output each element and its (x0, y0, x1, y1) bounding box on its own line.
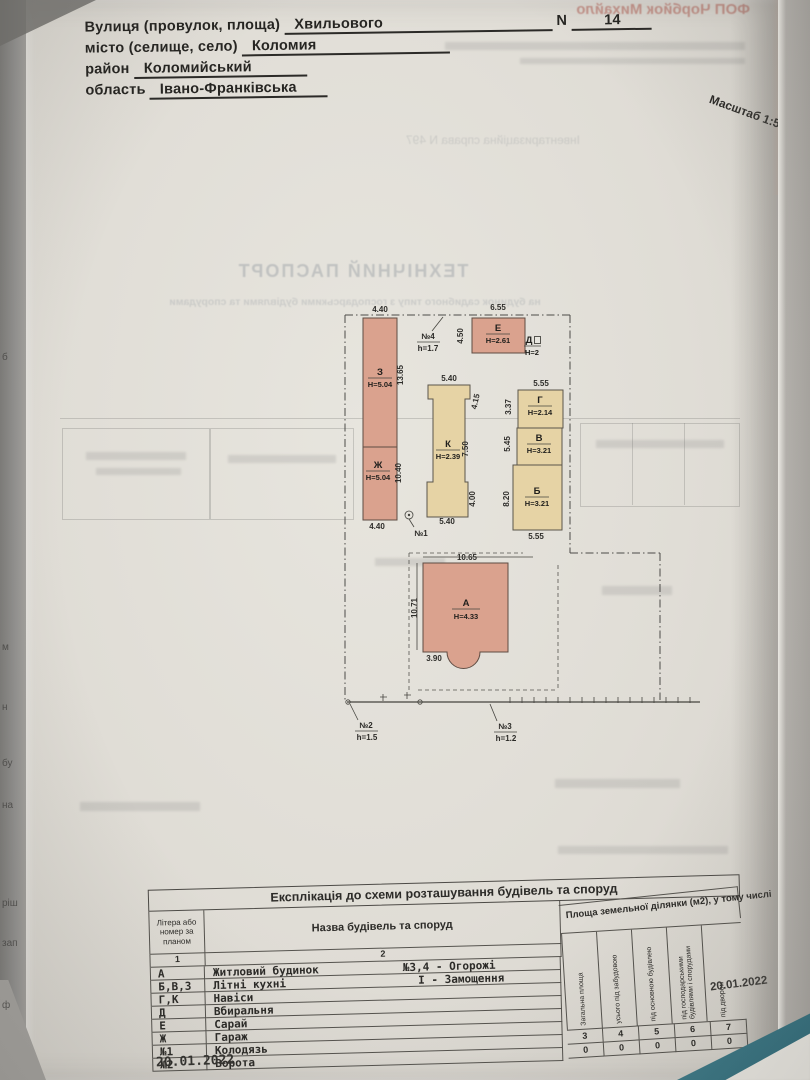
marker-leader (409, 519, 414, 527)
building-letter: В (536, 433, 543, 444)
dimension-label: 5.40 (441, 374, 457, 383)
marker-leader (432, 317, 443, 331)
building-height: Н=4.33 (454, 612, 478, 621)
row-name: Гараж (214, 1030, 247, 1044)
bleedthrough-bar (80, 802, 200, 811)
area-subcolumn-header: усього під забудовою (596, 930, 637, 1028)
bleedthrough-bar (86, 452, 186, 460)
bleedthrough-inventory-line: Інвентаризаційна справа N 497 (295, 133, 580, 147)
marker-label: №4 (421, 332, 435, 341)
dimension-label: 4.50 (456, 328, 465, 344)
marker-leader (350, 704, 358, 720)
row-name: Сарай (214, 1017, 247, 1031)
building-height: Н=3.21 (525, 499, 549, 508)
dimension-label: 6.55 (490, 303, 506, 312)
edge-text-fragment: на (2, 800, 24, 811)
dimension-label: 3.90 (426, 654, 442, 663)
building-height: Н=5.04 (366, 473, 391, 482)
marker-value: h=1.7 (418, 344, 439, 353)
region-row: область Івано-Франківська (85, 75, 605, 100)
dimension-label: 5.55 (533, 379, 549, 388)
edge-text-fragment: зап (2, 938, 24, 949)
well-symbol-dot (408, 514, 410, 516)
dimension-label: 4.40 (372, 305, 388, 314)
dimension-label: 10.65 (457, 553, 478, 562)
building-letter: Г (537, 395, 543, 406)
area-value: 0 (604, 1039, 641, 1056)
site-plan-drawing: З Н=5.04 Ж Н=5.04 Е Н=2.61 Д Н=2 Г Н=2.1… (335, 295, 710, 760)
date-stamp: 20.01.2022 (156, 1053, 235, 1071)
marker-label: №2 (359, 721, 373, 730)
area-value: 0 (568, 1042, 605, 1059)
edge-text-fragment: ріш (2, 898, 24, 909)
bleedthrough-box (210, 428, 354, 520)
fence-ticks (380, 692, 690, 703)
scanned-technical-passport-photo: { "document": { "header": { "street_labe… (0, 0, 810, 1080)
area-value: 0 (640, 1037, 677, 1054)
building-letter: Ж (373, 460, 383, 471)
building-letter: А (463, 598, 470, 609)
dimension-label: 10.40 (394, 462, 403, 483)
building-B (513, 465, 562, 530)
page-right-edge (778, 0, 810, 1080)
city-label: місто (селище, село) (85, 38, 238, 56)
dimension-label: 13.65 (396, 364, 405, 385)
area-subcolumn-header: Загальна площа (561, 932, 602, 1030)
column-header-letter: Літера або номер за планом (149, 910, 205, 954)
edge-text-fragment: н (2, 702, 24, 713)
dimension-label: 4.00 (468, 491, 477, 507)
district-label: район (85, 61, 130, 78)
bleedthrough-passport-title: ТЕХНІЧНИЙ ПАСПОРТ (235, 261, 470, 282)
building-height: Н=2.14 (528, 408, 553, 417)
marker-leader (490, 704, 497, 721)
dimension-label: 4.40 (369, 522, 385, 531)
dimension-label: 5.45 (503, 436, 512, 452)
page-fold-shadow (730, 0, 780, 1080)
edge-text-fragment: м (2, 642, 24, 653)
building-letter: З (377, 367, 383, 378)
city-value: Коломия (242, 36, 450, 57)
bleedthrough-stamp-text: ФОП Чорбйок Михайло (545, 1, 750, 18)
table-left-block: Літера або номер за планом Назва будівел… (148, 901, 564, 1072)
row-name: Навіси (213, 991, 253, 1005)
marker-value: h=1.2 (496, 734, 517, 743)
building-letter: Е (495, 323, 501, 334)
explication-table: Експлікація до схеми розташування будіве… (148, 874, 745, 1071)
district-value: Коломийський (134, 59, 307, 79)
dimension-label: 7.50 (461, 441, 470, 457)
building-letter: К (445, 439, 451, 450)
building-height: Н=5.04 (368, 380, 393, 389)
marker-label: №1 (414, 529, 428, 538)
table-area-block: Площа земельної ділянки (м2), у тому чис… (559, 890, 748, 1061)
dimension-label: 5.40 (439, 517, 455, 526)
dimension-label: 3.37 (504, 399, 513, 415)
building-Zh (363, 447, 397, 520)
bleedthrough-bar (96, 468, 181, 475)
area-subcolumn-header: під основною будівлею (631, 928, 672, 1026)
edge-text-fragment: б (2, 352, 24, 363)
underlying-page-edge (0, 0, 26, 1080)
region-value: Івано-Франківська (150, 79, 328, 99)
area-value: 0 (676, 1035, 713, 1052)
street-value: Хвильового (284, 13, 552, 35)
bleedthrough-bar (228, 455, 336, 463)
dimension-label: 8.20 (502, 491, 511, 507)
dimension-label: 10.71 (410, 597, 419, 618)
building-height: Н=2.39 (436, 452, 460, 461)
bleedthrough-bar (555, 779, 680, 788)
marker-value: h=1.5 (357, 733, 378, 742)
building-height: Н=3.21 (527, 446, 551, 455)
edge-text-fragment: бу (2, 758, 24, 769)
building-height: Н=2.61 (486, 336, 510, 345)
dimension-label: 5.55 (528, 532, 544, 541)
street-label: Вулиця (провулок, площа) (84, 17, 280, 36)
building-height: Н=2 (525, 348, 539, 357)
bleedthrough-bar (558, 846, 728, 854)
edge-text-fragment: ф (2, 1000, 24, 1011)
region-label: область (85, 82, 145, 99)
building-letter: Д (526, 335, 533, 346)
marker-label: №3 (498, 722, 512, 731)
area-subcolumn-header: під господарськими будівлями і спорудами (666, 925, 707, 1023)
building-letter: Б (534, 486, 541, 497)
bleedthrough-bar (520, 58, 745, 64)
dimension-label: 4.15 (470, 392, 482, 410)
bleedthrough-bar (445, 42, 745, 50)
building-D (535, 337, 541, 344)
